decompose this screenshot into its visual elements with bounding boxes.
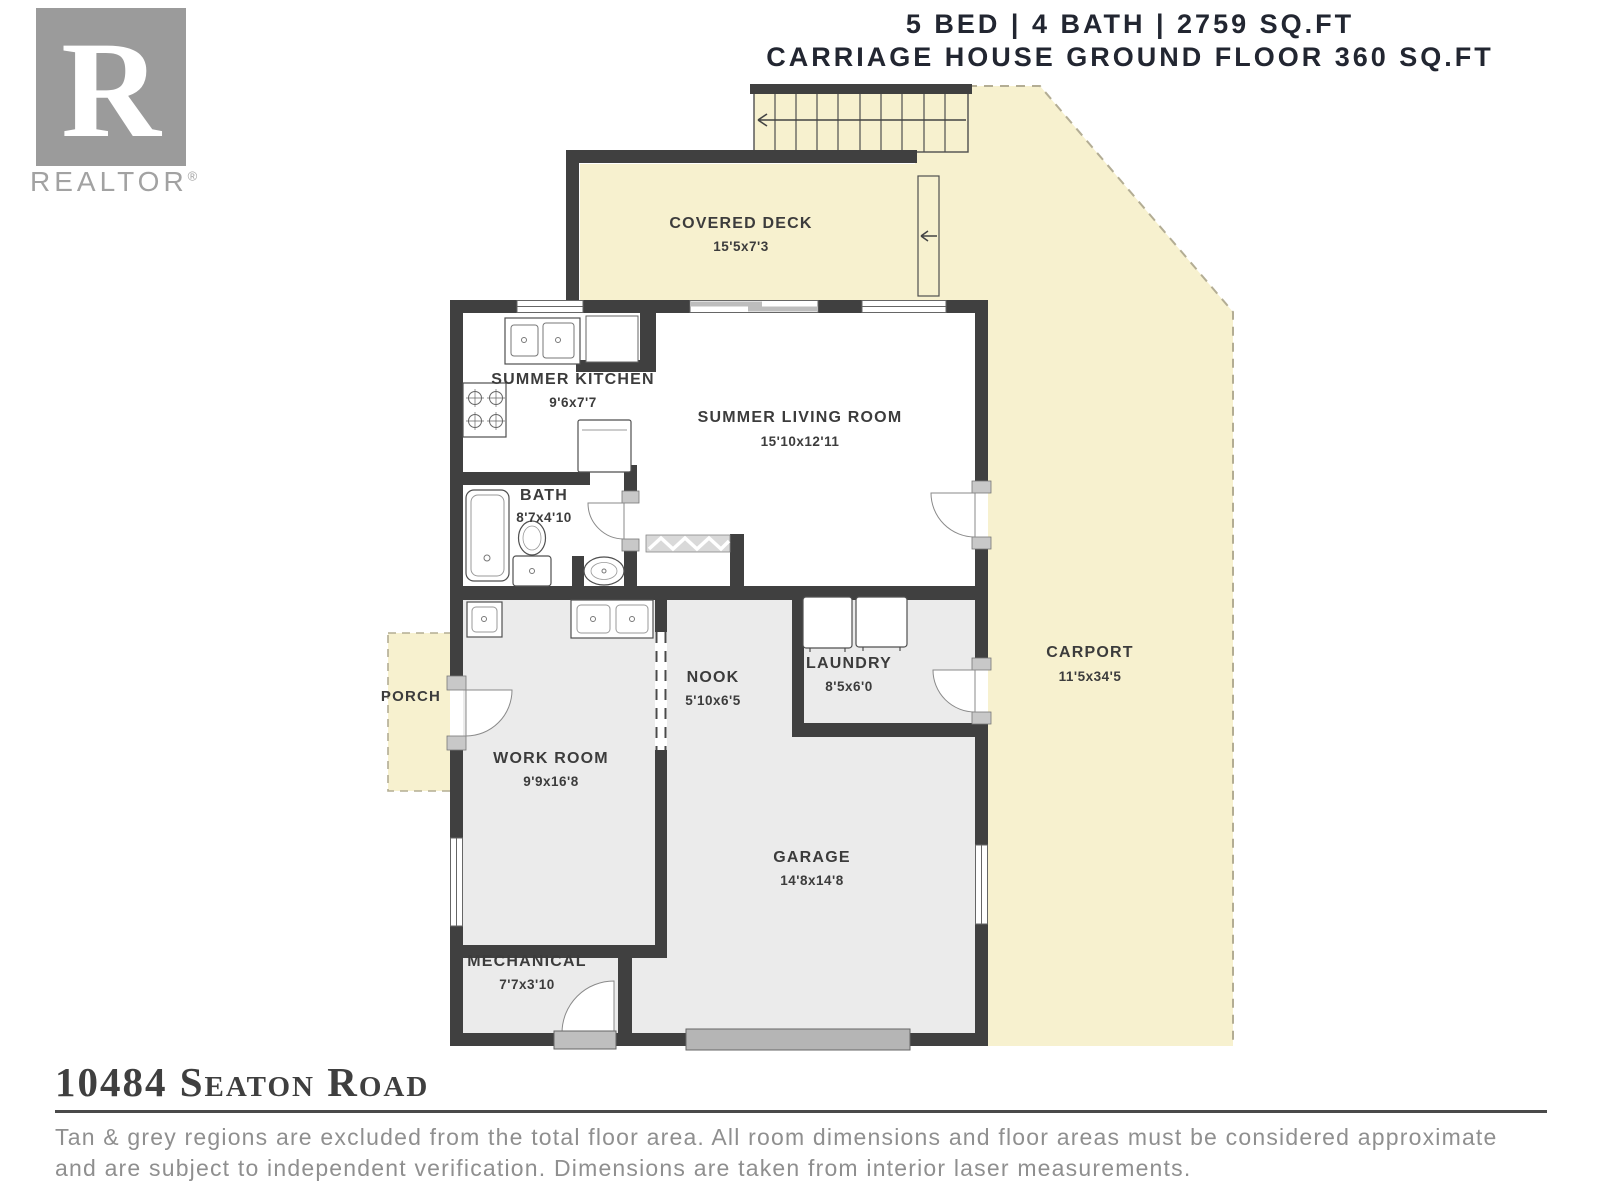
work-room-window: [451, 838, 463, 926]
svg-text:WORK ROOM: WORK ROOM: [493, 750, 609, 767]
floor-plan-page: R REALTOR® 5 BED | 4 BATH | 2759 SQ.FT C…: [0, 0, 1600, 1200]
pedestal-sink: [584, 557, 624, 585]
svg-text:15'10x12'11: 15'10x12'11: [761, 434, 840, 449]
svg-text:SUMMER KITCHEN: SUMMER KITCHEN: [491, 371, 654, 388]
garage-door: [686, 1029, 910, 1050]
svg-text:9'9x16'8: 9'9x16'8: [523, 774, 578, 789]
kitchen-window: [517, 301, 583, 313]
svg-text:SUMMER LIVING ROOM: SUMMER LIVING ROOM: [698, 409, 903, 426]
svg-text:CARPORT: CARPORT: [1046, 644, 1134, 661]
fridge: [578, 420, 631, 472]
disclaimer: Tan & grey regions are excluded from the…: [55, 1122, 1555, 1184]
kitchen-counter-recess: [586, 316, 638, 362]
svg-text:BATH: BATH: [520, 487, 568, 504]
label-summer-kitchen: SUMMER KITCHEN 9'6x7'7: [491, 371, 654, 410]
svg-text:PORCH: PORCH: [381, 688, 441, 705]
footer-divider: [55, 1110, 1547, 1113]
wall-mechanical-east: [618, 958, 632, 1046]
wall-workroom-east-lower: [655, 750, 667, 958]
stove: [463, 383, 506, 437]
label-bath: BATH 8'7x4'10: [516, 487, 571, 525]
label-summer-living-room: SUMMER LIVING ROOM 15'10x12'11: [698, 409, 903, 449]
floor-plan-drawing: COVERED DECK 15'5x7'3 SUMMER KITCHEN 9'6…: [0, 0, 1600, 1200]
svg-text:NOOK: NOOK: [687, 669, 740, 686]
wall-deck-top: [566, 150, 917, 163]
svg-text:GARAGE: GARAGE: [773, 849, 850, 866]
living-room-door: [931, 481, 991, 549]
work-room-sink: [467, 602, 502, 637]
label-porch: PORCH: [381, 688, 441, 705]
work-room-floor: [463, 600, 655, 945]
svg-text:14'8x14'8: 14'8x14'8: [780, 873, 843, 888]
disclaimer-line-2: and are subject to independent verificat…: [55, 1153, 1555, 1184]
wall-closet-stub: [730, 534, 744, 586]
living-room-window: [862, 301, 946, 313]
work-room-double-sink: [571, 600, 653, 638]
svg-text:7'7x3'10: 7'7x3'10: [499, 977, 554, 992]
wall-left: [450, 300, 463, 1046]
washer: [803, 597, 852, 652]
kitchen-sink-counter: [505, 318, 580, 364]
disclaimer-line-1: Tan & grey regions are excluded from the…: [55, 1122, 1555, 1153]
wall-laundry-south: [792, 723, 988, 737]
stair-top-wall: [750, 84, 972, 94]
carport-stair-strip: [918, 176, 939, 296]
svg-text:LAUNDRY: LAUNDRY: [806, 655, 892, 672]
property-address: 10484 Seaton Road: [55, 1058, 429, 1106]
wall-suite-divider: [450, 586, 988, 600]
wall-toilet-stub: [572, 556, 584, 586]
bathtub: [466, 490, 509, 581]
porch-area: [388, 633, 452, 791]
closet-shelf-hatch: [646, 535, 730, 552]
exterior-staircase: [750, 84, 972, 152]
svg-text:8'7x4'10: 8'7x4'10: [516, 510, 571, 525]
wall-bath-top: [450, 472, 590, 485]
toilet: [513, 521, 551, 586]
svg-text:15'5x7'3: 15'5x7'3: [713, 239, 768, 254]
wall-workroom-east-upper: [655, 600, 667, 632]
wall-laundry-west: [792, 600, 804, 737]
deck-sliding-door: [690, 301, 818, 313]
svg-text:MECHANICAL: MECHANICAL: [467, 953, 587, 970]
dryer: [856, 597, 907, 651]
bath-door: [588, 491, 639, 551]
svg-text:8'5x6'0: 8'5x6'0: [825, 679, 872, 694]
svg-text:9'6x7'7: 9'6x7'7: [549, 395, 596, 410]
workroom-nook-opening: [655, 632, 667, 750]
wall-deck-left: [566, 150, 579, 312]
svg-text:COVERED DECK: COVERED DECK: [669, 215, 812, 232]
svg-text:5'10x6'5: 5'10x6'5: [685, 693, 740, 708]
garage-window: [976, 845, 988, 924]
svg-text:11'5x34'5: 11'5x34'5: [1059, 669, 1122, 684]
